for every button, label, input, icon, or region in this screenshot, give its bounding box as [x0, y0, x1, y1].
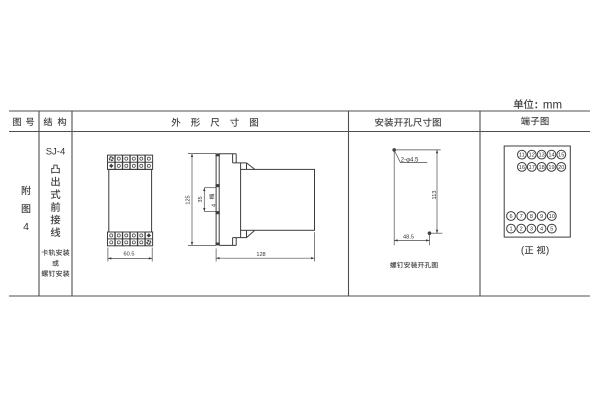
svg-text:113: 113: [432, 191, 438, 200]
svg-text:mm: mm: [543, 99, 562, 111]
svg-text:13: 13: [538, 153, 544, 159]
svg-text:15: 15: [558, 153, 564, 159]
svg-text:4: 4: [212, 203, 218, 207]
svg-text:14: 14: [548, 153, 554, 159]
svg-text:125: 125: [186, 195, 192, 204]
svg-text:17: 17: [529, 165, 535, 171]
svg-text:4: 4: [540, 227, 543, 233]
svg-text:9: 9: [540, 214, 543, 220]
svg-text:35: 35: [198, 196, 204, 202]
svg-text:8: 8: [530, 214, 533, 220]
svg-text:48.5: 48.5: [403, 235, 414, 241]
svg-text:10: 10: [549, 214, 555, 220]
svg-text:12: 12: [529, 153, 535, 159]
svg-text:5: 5: [550, 227, 553, 233]
svg-text:2-φ4.5: 2-φ4.5: [401, 158, 419, 164]
svg-text:1: 1: [509, 227, 512, 233]
svg-text:128: 128: [256, 252, 265, 258]
svg-text:3: 3: [530, 227, 533, 233]
svg-text:4: 4: [23, 221, 29, 233]
svg-text:20: 20: [558, 165, 564, 171]
svg-text:18: 18: [538, 165, 544, 171]
svg-text:19: 19: [548, 165, 554, 171]
svg-text:SJ-4: SJ-4: [46, 146, 66, 157]
svg-text:60.5: 60.5: [124, 252, 135, 258]
svg-text:7: 7: [520, 214, 523, 220]
svg-text:(: (: [521, 245, 525, 256]
svg-text:6: 6: [509, 214, 512, 220]
svg-text:): ): [546, 245, 549, 256]
svg-text:11: 11: [519, 153, 525, 159]
svg-text:2: 2: [520, 227, 523, 233]
svg-text:16: 16: [519, 165, 525, 171]
